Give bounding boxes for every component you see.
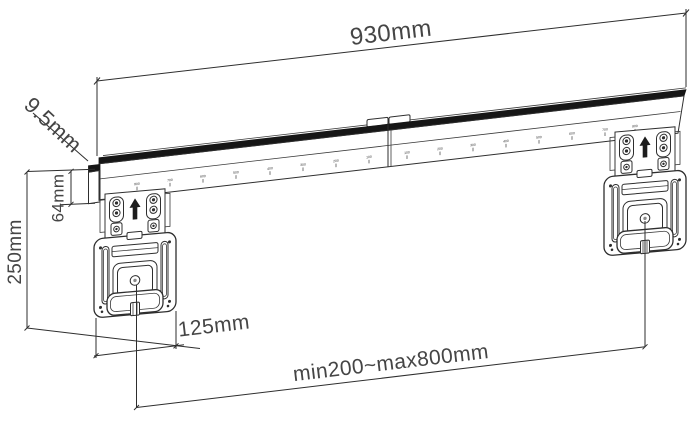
rail-scale-mark: 400 (503, 139, 509, 144)
rail-scale-mark: 100 (366, 155, 372, 160)
dimension-label-64mm: 64mm (48, 174, 67, 223)
rail-scale-mark: 800 (134, 182, 140, 187)
rail-scale-mark: 400 (267, 166, 273, 171)
wall-mount-dimension-drawing: 800 700 600 500 400 300 200 100 100 200 … (0, 0, 700, 424)
rail-scale-mark: 300 (300, 163, 306, 168)
rail-scale-mark: 500 (536, 135, 542, 140)
rail-scale-mark: 300 (470, 143, 476, 148)
rail-scale-mark: 500 (233, 170, 239, 175)
drawing-canvas: 800 700 600 500 400 300 200 100 100 200 … (0, 0, 700, 424)
rail-scale-mark: 700 (602, 127, 608, 132)
dimension-label-250mm: 250mm (5, 219, 26, 284)
left-bracket (94, 188, 176, 319)
rail-scale-mark: 200 (437, 147, 443, 152)
rail-scale-mark: 200 (333, 159, 339, 164)
rail-scale-mark: 700 (167, 178, 173, 183)
rail-scale-mark: 100 (404, 150, 410, 155)
rail-scale-mark: 800 (632, 124, 638, 129)
rail-scale-mark: 600 (569, 131, 575, 136)
rail-scale-mark: 600 (200, 174, 206, 179)
